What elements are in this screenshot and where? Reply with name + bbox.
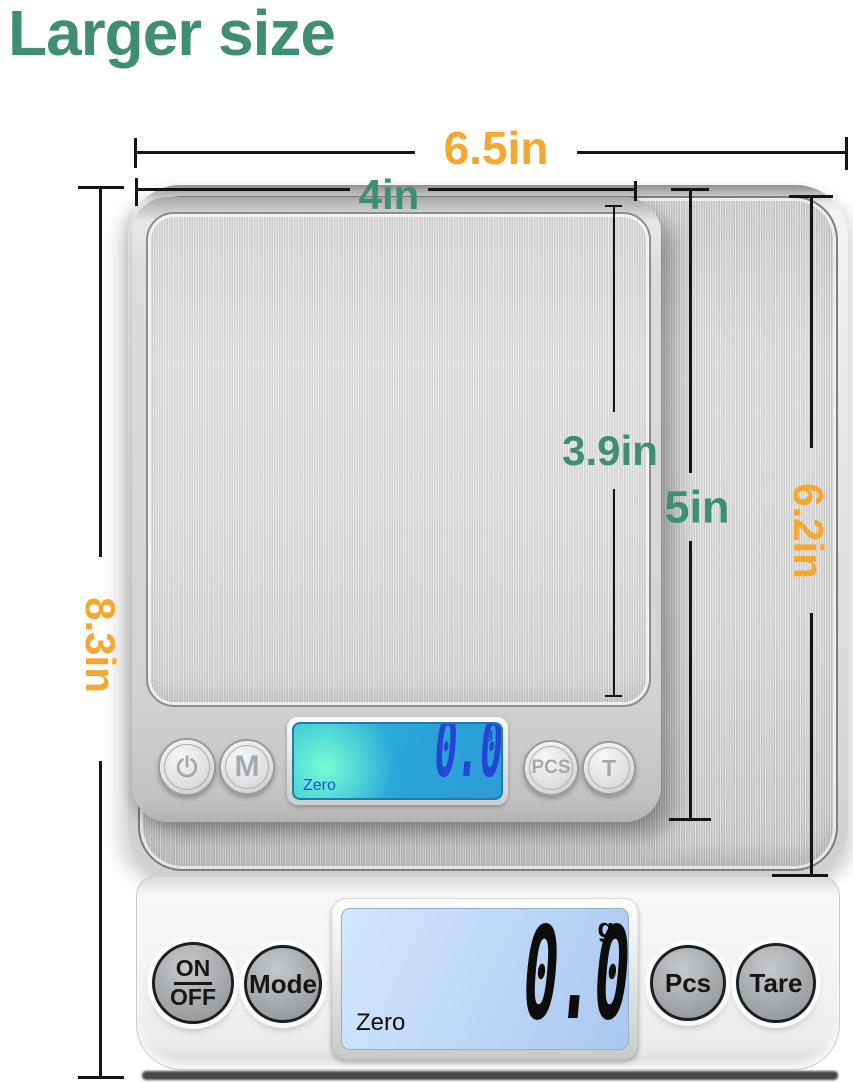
dim-end-large-height-bottom [78, 1076, 124, 1079]
small-lcd-display: g 0.0 Zero [292, 722, 503, 800]
dim-line-large-height [99, 761, 102, 1077]
tare-button-label: Tare [750, 968, 803, 999]
on-off-button-label: ON OFF [170, 956, 216, 1010]
pcs-button-label: Pcs [665, 968, 711, 999]
mode-button: Mode [244, 945, 322, 1023]
pcs-button-small-label: PCS [531, 757, 570, 779]
on-off-button: ON OFF [152, 942, 234, 1024]
dim-label-small-platform: 3.9in [562, 430, 658, 472]
m-button: M [219, 739, 275, 795]
small-lcd-value: 0.0 [431, 722, 503, 790]
dim-line-large-platform [810, 198, 813, 448]
dim-label-large-platform: 6.2in [787, 483, 829, 579]
power-icon [173, 753, 201, 781]
tare-button: Tare [736, 943, 816, 1023]
dim-end-large-platform-bottom [772, 874, 828, 877]
dim-end-large-width-left [134, 138, 137, 168]
dim-line-large-width [135, 151, 415, 154]
dim-end-small-width-right [634, 181, 637, 201]
page-title: Larger size [8, 0, 335, 70]
product-size-diagram: Larger size ON OFF Mode g 0.0 Zero [0, 0, 853, 1082]
dim-end-small-width-left [135, 178, 138, 206]
t-button-small-label: T [602, 755, 616, 782]
large-lcd-bezel: g 0.0 Zero [331, 898, 639, 1060]
pcs-button-small: PCS [523, 740, 579, 796]
dim-line-small-width [136, 188, 350, 191]
m-button-label: M [235, 750, 260, 784]
power-button [158, 738, 216, 796]
dim-line-small-height [689, 191, 692, 473]
dim-label-small-height: 5in [664, 485, 729, 530]
large-lcd-display: g 0.0 Zero [341, 908, 629, 1050]
large-scale-shadow [142, 1071, 838, 1080]
dim-line-small-platform [613, 489, 615, 696]
dim-line-small-height [689, 541, 692, 819]
t-button-small: T [582, 741, 636, 795]
dim-line-small-platform [613, 207, 615, 412]
large-lcd-value: 0.0 [518, 911, 629, 1039]
small-lcd-status: Zero [303, 777, 336, 795]
mode-button-label: Mode [249, 969, 317, 1000]
dim-label-large-width: 6.5in [444, 125, 549, 171]
dim-line-large-width [577, 151, 847, 154]
pcs-button: Pcs [650, 945, 726, 1021]
small-lcd-bezel: g 0.0 Zero [287, 717, 508, 805]
dim-line-large-platform [810, 613, 813, 876]
dim-label-small-width: 4in [359, 174, 420, 216]
dim-end-small-height-bottom [669, 818, 711, 821]
dim-label-large-height: 8.3in [79, 597, 121, 693]
dim-line-large-height [99, 189, 102, 557]
dim-end-small-platform-bottom [605, 695, 622, 697]
large-lcd-status: Zero [356, 1009, 405, 1037]
dim-end-large-width-right [845, 137, 848, 170]
dim-line-small-width [428, 188, 636, 191]
